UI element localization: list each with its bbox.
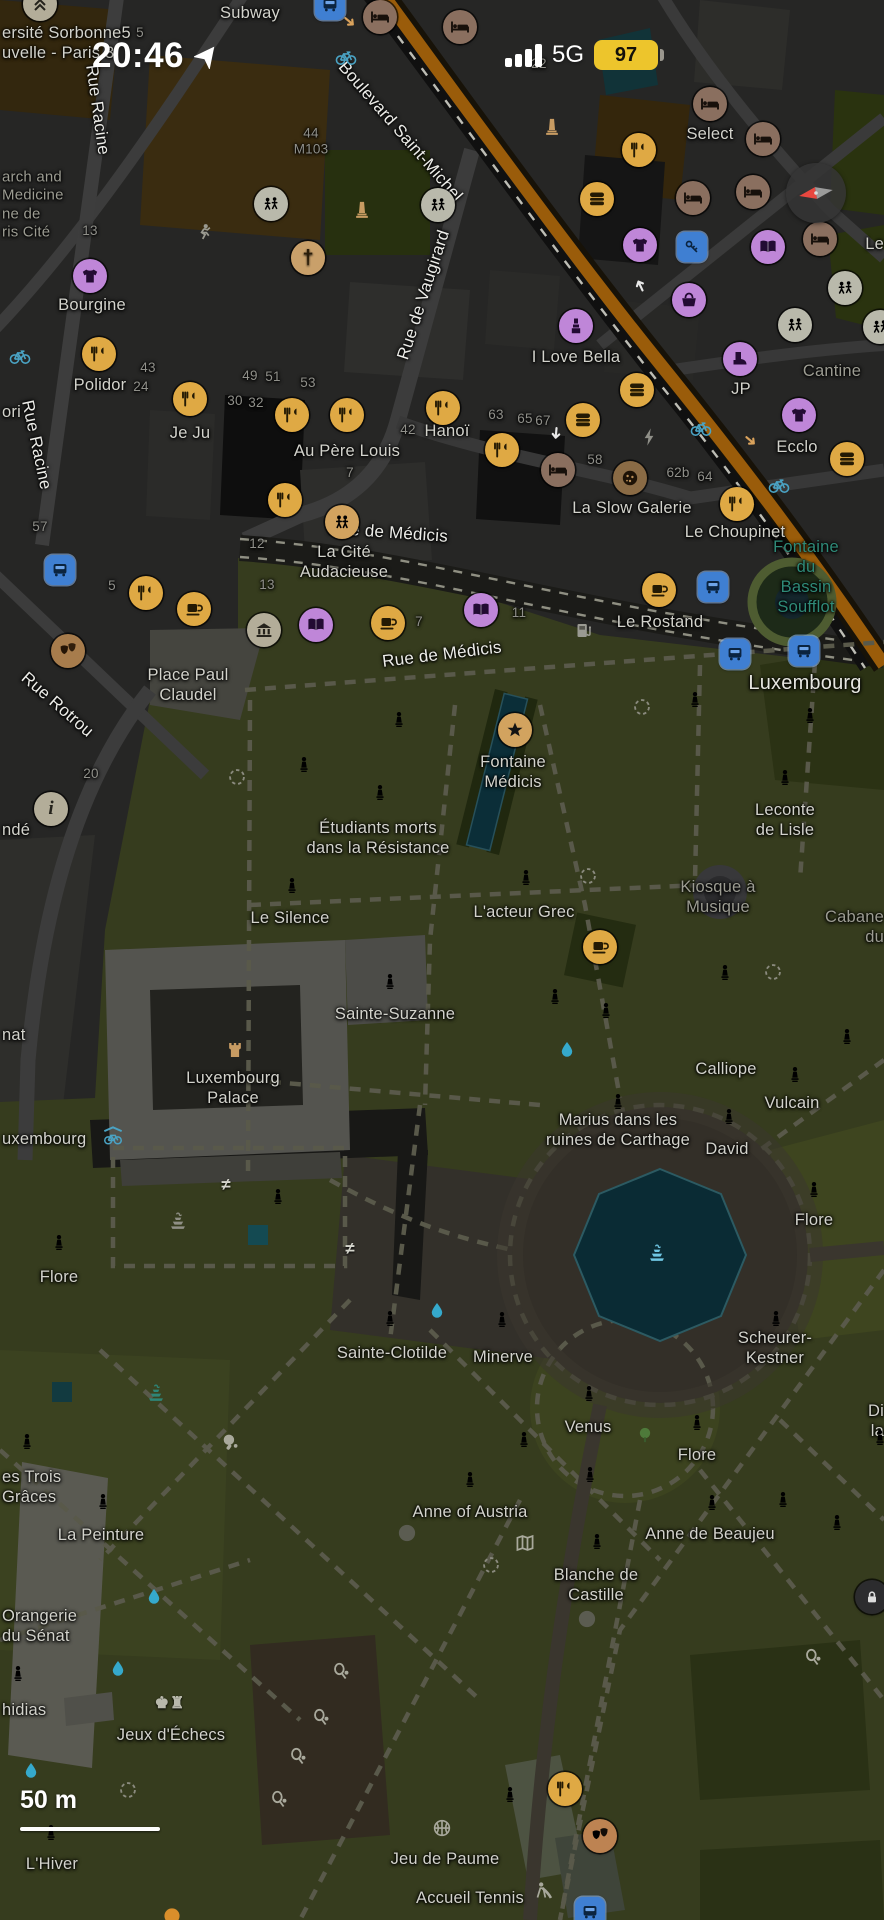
fork-icon[interactable]: [173, 382, 207, 416]
bike-icon: [688, 415, 714, 441]
statue-icon: [377, 1306, 403, 1332]
fork-icon[interactable]: [426, 391, 460, 425]
fork-icon[interactable]: [275, 398, 309, 432]
racket-icon: [327, 1659, 353, 1685]
droplet-icon: [554, 1036, 580, 1062]
statue-icon: [279, 873, 305, 899]
fountain-icon: [165, 1209, 191, 1235]
burger-icon[interactable]: [580, 182, 614, 216]
burger-icon[interactable]: [830, 442, 864, 476]
cycle-icon: [575, 863, 601, 889]
statue-icon: [291, 752, 317, 778]
masks-icon[interactable]: [583, 1819, 617, 1853]
statue-icon: [5, 1661, 31, 1687]
tshirt-icon[interactable]: [73, 259, 107, 293]
playground-icon[interactable]: [778, 308, 812, 342]
statue-icon: [489, 1307, 515, 1333]
tshirt-icon[interactable]: [623, 228, 657, 262]
dotorange-icon: [159, 1903, 185, 1920]
bed-icon[interactable]: [676, 181, 710, 215]
star-icon[interactable]: [498, 713, 532, 747]
statue-icon: [265, 1184, 291, 1210]
bus-icon[interactable]: [789, 636, 819, 666]
masks-icon[interactable]: [51, 634, 85, 668]
fork-icon[interactable]: [485, 433, 519, 467]
bed-icon[interactable]: [746, 122, 780, 156]
bus-icon[interactable]: [698, 572, 728, 602]
fork-icon[interactable]: [548, 1772, 582, 1806]
compass-needle-icon: [794, 171, 838, 215]
playground-icon[interactable]: [421, 188, 455, 222]
statue-icon: [576, 1381, 602, 1407]
bike-icon: [766, 472, 792, 498]
chess-icon: ♚♜: [157, 1690, 183, 1716]
racket-icon: [284, 1744, 310, 1770]
playground-icon[interactable]: [254, 187, 288, 221]
statue-icon: [457, 1467, 483, 1493]
gcircle-icon: [574, 1606, 600, 1632]
bed-icon[interactable]: [541, 453, 575, 487]
statue-icon: [90, 1489, 116, 1515]
book-icon[interactable]: [751, 230, 785, 264]
bed-icon[interactable]: [803, 222, 837, 256]
map-scale: 50 m: [20, 1786, 160, 1831]
bike-icon: [7, 343, 33, 369]
statue-icon: [699, 1490, 725, 1516]
statue-icon: [867, 1425, 884, 1451]
gate-icon: ≠: [337, 1236, 363, 1262]
bed-icon[interactable]: [443, 10, 477, 44]
fork-icon[interactable]: [622, 133, 656, 167]
tshirt-icon[interactable]: [782, 398, 816, 432]
coffee-icon[interactable]: [371, 606, 405, 640]
lock-icon[interactable]: [855, 1580, 884, 1614]
statue-icon: [511, 1427, 537, 1453]
statue-icon: [684, 1410, 710, 1436]
cycle-icon: [478, 1552, 504, 1578]
gcircle-icon: [394, 1520, 420, 1546]
info-icon[interactable]: i: [34, 792, 68, 826]
racket-icon: [265, 1787, 291, 1813]
bed-icon[interactable]: [363, 0, 397, 34]
droplet-icon: [18, 1757, 44, 1783]
statue-icon: [797, 703, 823, 729]
cycle-icon: [224, 764, 250, 790]
lightning-icon: [636, 424, 662, 450]
bus-icon[interactable]: [575, 1897, 605, 1920]
family-icon[interactable]: [325, 505, 359, 539]
mapfold-icon: [512, 1530, 538, 1556]
bus-icon[interactable]: [45, 555, 75, 585]
fountain-icon: [644, 1241, 670, 1267]
statue-icon: [834, 1024, 860, 1050]
bikeroof-icon: [100, 1123, 126, 1149]
bike-icon: [333, 44, 359, 70]
statue-icon: [377, 969, 403, 995]
coffee-icon[interactable]: [177, 592, 211, 626]
statue-icon: [513, 865, 539, 891]
arrow-icon: [542, 420, 570, 448]
statue-icon: [386, 707, 412, 733]
fountain-icon: [143, 1381, 169, 1407]
bank-icon[interactable]: [247, 613, 281, 647]
map-canvas[interactable]: [0, 0, 884, 1920]
book-icon[interactable]: [464, 593, 498, 627]
fork-icon[interactable]: [268, 483, 302, 517]
burger-icon[interactable]: [566, 403, 600, 437]
statue-icon: [682, 687, 708, 713]
ev-icon: [571, 618, 597, 644]
maps-app-screen: Subwayersité Sorbonne5 uvelle - Paris 3a…: [0, 0, 884, 1920]
statue-icon: [593, 998, 619, 1024]
basketball-icon: [429, 1815, 455, 1841]
fork-icon[interactable]: [330, 398, 364, 432]
statue-icon: [584, 1529, 610, 1555]
bed-icon[interactable]: [693, 87, 727, 121]
statue-icon: [801, 1177, 827, 1203]
slide-icon: [531, 1878, 557, 1904]
book-icon[interactable]: [299, 608, 333, 642]
statue-icon: [712, 960, 738, 986]
fork-icon[interactable]: [82, 337, 116, 371]
scale-label: 50 m: [20, 1786, 160, 1815]
running-icon: [191, 219, 217, 245]
castle-icon: [222, 1037, 248, 1063]
fork-icon[interactable]: [129, 576, 163, 610]
burger-icon[interactable]: [620, 373, 654, 407]
coffee-icon[interactable]: [642, 573, 676, 607]
statue-icon: [46, 1230, 72, 1256]
statue-icon: [367, 780, 393, 806]
gate-icon: ≠: [213, 1172, 239, 1198]
racket-icon: [307, 1705, 333, 1731]
statue-icon: [14, 1429, 40, 1455]
racket-icon: [799, 1645, 825, 1671]
cross-icon[interactable]: †: [291, 241, 325, 275]
coffee-icon[interactable]: [583, 930, 617, 964]
droplet-icon: [141, 1583, 167, 1609]
tree-icon: [632, 1422, 658, 1448]
statue-icon: [824, 1510, 850, 1536]
boot-icon[interactable]: [723, 342, 757, 376]
droplet-icon: [105, 1655, 131, 1681]
scale-line: [20, 1827, 160, 1831]
fork-icon[interactable]: [720, 487, 754, 521]
cookie-icon[interactable]: [613, 461, 647, 495]
statue-icon: [782, 1062, 808, 1088]
cycle-icon: [629, 694, 655, 720]
statue-icon: [605, 1089, 631, 1115]
pingpong-icon: [217, 1429, 243, 1455]
statue-icon: [497, 1782, 523, 1808]
basket-icon[interactable]: [672, 283, 706, 317]
bed-icon[interactable]: [736, 175, 770, 209]
bus-icon[interactable]: [720, 639, 750, 669]
statue-icon: [716, 1104, 742, 1130]
statue-icon: [770, 1487, 796, 1513]
cycle-icon: [760, 959, 786, 985]
playground-icon[interactable]: [828, 271, 862, 305]
compass-button[interactable]: [786, 163, 846, 223]
lipstick-icon[interactable]: [559, 309, 593, 343]
statue-icon: [763, 1306, 789, 1332]
statue-icon: [772, 765, 798, 791]
obelisk-icon: [349, 197, 375, 223]
statue-icon: [542, 984, 568, 1010]
obelisk-icon: [539, 114, 565, 140]
droplet-icon: [424, 1297, 450, 1323]
statue-icon: [577, 1462, 603, 1488]
bikeshop-icon[interactable]: [677, 232, 707, 262]
